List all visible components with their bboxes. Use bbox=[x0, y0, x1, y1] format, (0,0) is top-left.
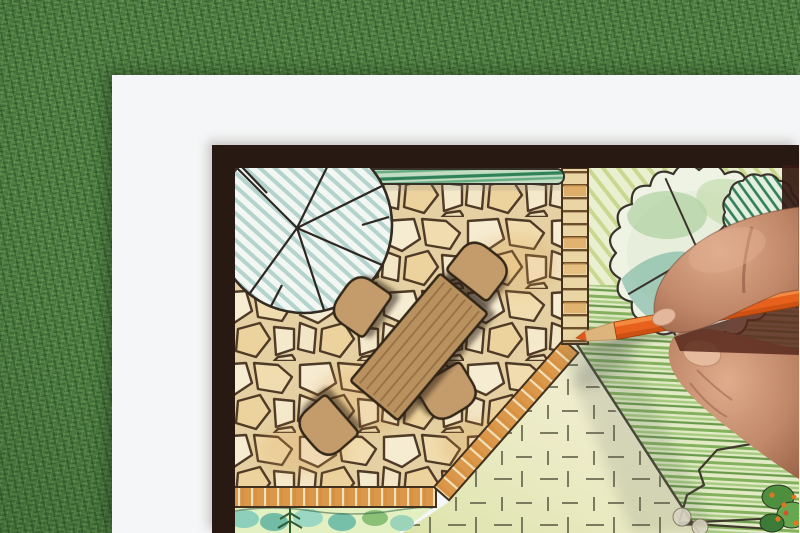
scene bbox=[0, 0, 800, 533]
hedge-row bbox=[359, 169, 564, 189]
paper-sheet bbox=[112, 75, 800, 533]
brick-path bbox=[562, 168, 588, 344]
planting-bed bbox=[229, 507, 434, 533]
garden-plan-drawing bbox=[212, 145, 799, 533]
